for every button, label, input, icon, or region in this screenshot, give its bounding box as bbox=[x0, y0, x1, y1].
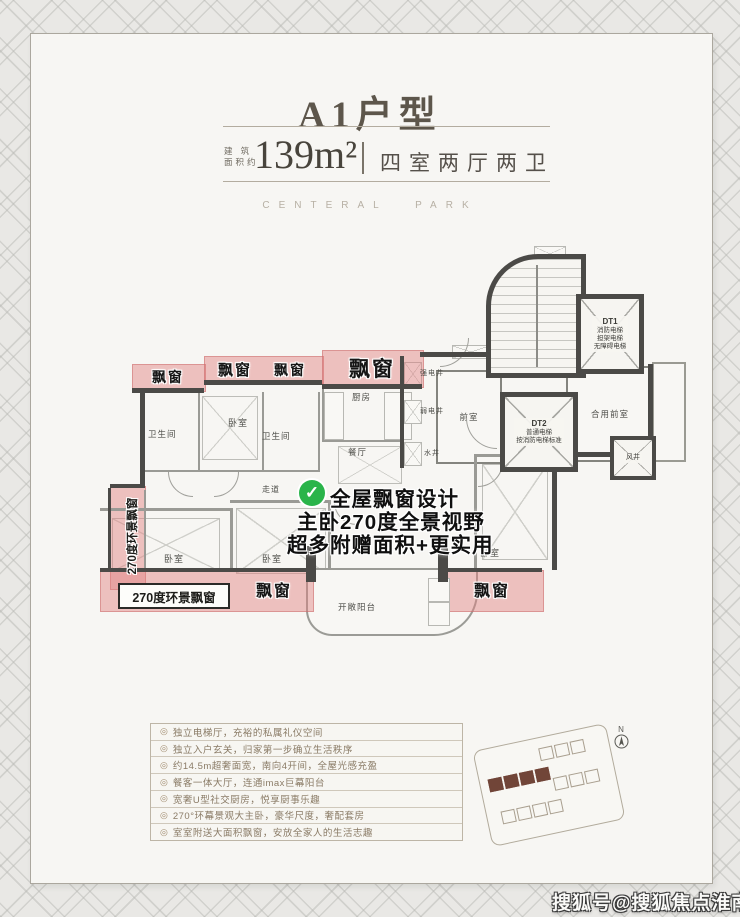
feature-text: 独立电梯厅，充裕的私属礼仪空间 bbox=[173, 725, 323, 739]
kitchen-counter bbox=[324, 392, 344, 440]
feature-text: 270°环幕景观大主卧，豪华尺度，奢配套房 bbox=[173, 808, 365, 822]
elevator-dt1-line1: 消防电梯 bbox=[594, 327, 627, 335]
annotation-line3: 超多附赠面积+更实用 bbox=[287, 528, 493, 558]
shaft-label-water: 水井 bbox=[424, 448, 440, 458]
check-icon: ✓ bbox=[299, 480, 325, 506]
feature-text: 餐客一体大厅，连通imax巨幕阳台 bbox=[173, 775, 325, 789]
feature-row: ◎270°环幕景观大主卧，豪华尺度，奢配套房 bbox=[151, 808, 462, 825]
room-label-shared-front: 合用前室 bbox=[591, 408, 629, 420]
site-building-cluster-highlighted bbox=[488, 767, 551, 793]
feature-row: ◎独立入户玄关，归家第一步确立生活秩序 bbox=[151, 741, 462, 758]
site-building bbox=[503, 773, 519, 789]
site-building bbox=[554, 742, 570, 758]
elevator-dt2-line1: 普通电梯 bbox=[516, 429, 562, 437]
feature-row: ◎宽奢U型社交厨房，悦享厨事乐趣 bbox=[151, 791, 462, 808]
elevator-dt2-name: DT2 bbox=[516, 419, 562, 429]
balcony-fixture bbox=[428, 602, 450, 626]
bay-window-label: 飘窗 bbox=[206, 358, 264, 380]
feature-row: ◎室室附送大面积飘窗，安放全家人的生活志趣 bbox=[151, 824, 462, 840]
bay-window-label: 飘窗 bbox=[134, 366, 202, 388]
compass-icon bbox=[614, 734, 629, 749]
site-building bbox=[532, 802, 548, 818]
site-building-cluster bbox=[538, 739, 586, 761]
room-label-bedroom: 卧室 bbox=[262, 552, 282, 565]
bullet-icon: ◎ bbox=[160, 727, 168, 736]
elevator-dt1-name: DT1 bbox=[594, 317, 627, 327]
feature-list: ◎独立电梯厅，充裕的私属礼仪空间 ◎独立入户玄关，归家第一步确立生活秩序 ◎约1… bbox=[150, 723, 463, 841]
shaft-box bbox=[404, 442, 422, 466]
elevator-dt2-line2: 按消防电梯标准 bbox=[516, 437, 562, 445]
elevator-dt2: DT2 普通电梯 按消防电梯标准 bbox=[500, 392, 578, 472]
wall-segment bbox=[446, 568, 542, 572]
panorama-bay-label-horizontal: 270度环景飘窗 bbox=[118, 583, 230, 609]
feature-row: ◎约14.5m超奢面宽，南向4开间，全屋光感充盈 bbox=[151, 757, 462, 774]
elevator-dt1-line2: 担架电梯 bbox=[594, 335, 627, 343]
x-hatch bbox=[405, 443, 421, 465]
header-divider-top bbox=[223, 126, 550, 127]
wall-segment bbox=[322, 384, 422, 389]
room-label-corridor: 走道 bbox=[262, 484, 280, 495]
shaft-label-weak-elec: 弱电井 bbox=[420, 406, 444, 416]
site-building bbox=[547, 799, 563, 815]
partition-line bbox=[322, 440, 402, 442]
site-building bbox=[500, 809, 516, 825]
bay-window-label: 飘窗 bbox=[458, 576, 526, 602]
north-label: N bbox=[612, 726, 630, 734]
bay-window-label: 飘窗 bbox=[264, 359, 316, 380]
partition-line bbox=[100, 508, 232, 511]
room-label-dining: 餐厅 bbox=[348, 446, 367, 458]
bullet-icon: ◎ bbox=[160, 761, 168, 770]
panorama-bay-label-vertical: 270度环景飘窗 bbox=[124, 481, 140, 591]
stairwell bbox=[486, 254, 586, 378]
site-building bbox=[488, 777, 504, 793]
feature-text: 室室附送大面积飘窗，安放全家人的生活志趣 bbox=[173, 825, 373, 839]
room-label-bathroom: 卫生间 bbox=[262, 430, 291, 442]
room-label-balcony: 开敞阳台 bbox=[338, 601, 376, 613]
bullet-icon: ◎ bbox=[160, 811, 168, 820]
room-label-kitchen: 厨房 bbox=[352, 391, 371, 403]
site-building bbox=[568, 772, 584, 788]
page-title: A1户型 bbox=[0, 84, 740, 138]
feature-row: ◎独立电梯厅，充裕的私属礼仪空间 bbox=[151, 724, 462, 741]
elevator-dt1-line3: 无障碍电梯 bbox=[594, 343, 627, 351]
site-building-cluster bbox=[553, 769, 601, 791]
header-divider-bottom bbox=[223, 181, 550, 182]
stair-divider bbox=[536, 265, 538, 367]
north-compass: N bbox=[612, 726, 630, 754]
site-building-cluster bbox=[500, 799, 563, 825]
site-building bbox=[516, 805, 532, 821]
wall-segment bbox=[552, 456, 557, 570]
site-building bbox=[534, 767, 550, 783]
header-separator-bar bbox=[362, 142, 364, 174]
room-label-wind-shaft: 风井 bbox=[624, 453, 642, 464]
partition-line bbox=[144, 490, 146, 570]
balcony-window-line bbox=[316, 568, 440, 570]
watermark: 搜狐号@搜狐焦点淮南站 bbox=[552, 888, 740, 915]
feature-text: 独立入户玄关，归家第一步确立生活秩序 bbox=[173, 742, 353, 756]
brand-text: CENTERAL PARK bbox=[0, 200, 740, 211]
wind-shaft-box: 风井 bbox=[610, 436, 656, 480]
bullet-icon: ◎ bbox=[160, 828, 168, 837]
wall-segment bbox=[140, 390, 145, 488]
layout-text: 四室两厅两卫 bbox=[380, 147, 554, 177]
shaft-label-strong-elec: 强电井 bbox=[420, 368, 444, 378]
wall-segment bbox=[108, 488, 111, 572]
x-hatch bbox=[405, 401, 421, 423]
elevator-dt2-label: DT2 普通电梯 按消防电梯标准 bbox=[514, 418, 564, 446]
partition-line bbox=[318, 392, 320, 470]
partition-line bbox=[322, 389, 324, 441]
bullet-icon: ◎ bbox=[160, 794, 168, 803]
partition-line bbox=[230, 508, 233, 570]
site-building bbox=[584, 769, 600, 785]
bullet-icon: ◎ bbox=[160, 744, 168, 753]
wall-segment bbox=[420, 352, 486, 357]
partition-line bbox=[198, 392, 200, 470]
site-building bbox=[553, 775, 569, 791]
elevator-dt1: DT1 消防电梯 担架电梯 无障碍电梯 bbox=[576, 294, 644, 374]
site-building bbox=[538, 746, 554, 762]
room-label-bathroom: 卫生间 bbox=[148, 428, 177, 440]
adjacent-room bbox=[652, 362, 686, 462]
bay-window-label: 飘窗 bbox=[328, 353, 416, 383]
elevator-dt1-label: DT1 消防电梯 担架电梯 无障碍电梯 bbox=[592, 316, 629, 352]
room-label-bedroom: 卧室 bbox=[228, 416, 248, 429]
bullet-icon: ◎ bbox=[160, 778, 168, 787]
wall-segment bbox=[204, 380, 322, 385]
feature-text: 宽奢U型社交厨房，悦享厨事乐趣 bbox=[173, 792, 320, 806]
area-value: 139m² bbox=[254, 131, 357, 178]
site-building bbox=[519, 770, 535, 786]
feature-text: 约14.5m超奢面宽，南向4开间，全屋光感充盈 bbox=[173, 758, 378, 772]
front-room: 前室 bbox=[436, 370, 502, 464]
feature-row: ◎餐客一体大厅，连通imax巨幕阳台 bbox=[151, 774, 462, 791]
room-label-bedroom: 卧室 bbox=[164, 552, 184, 565]
bay-window-label: 飘窗 bbox=[244, 576, 304, 602]
site-building bbox=[569, 739, 585, 755]
